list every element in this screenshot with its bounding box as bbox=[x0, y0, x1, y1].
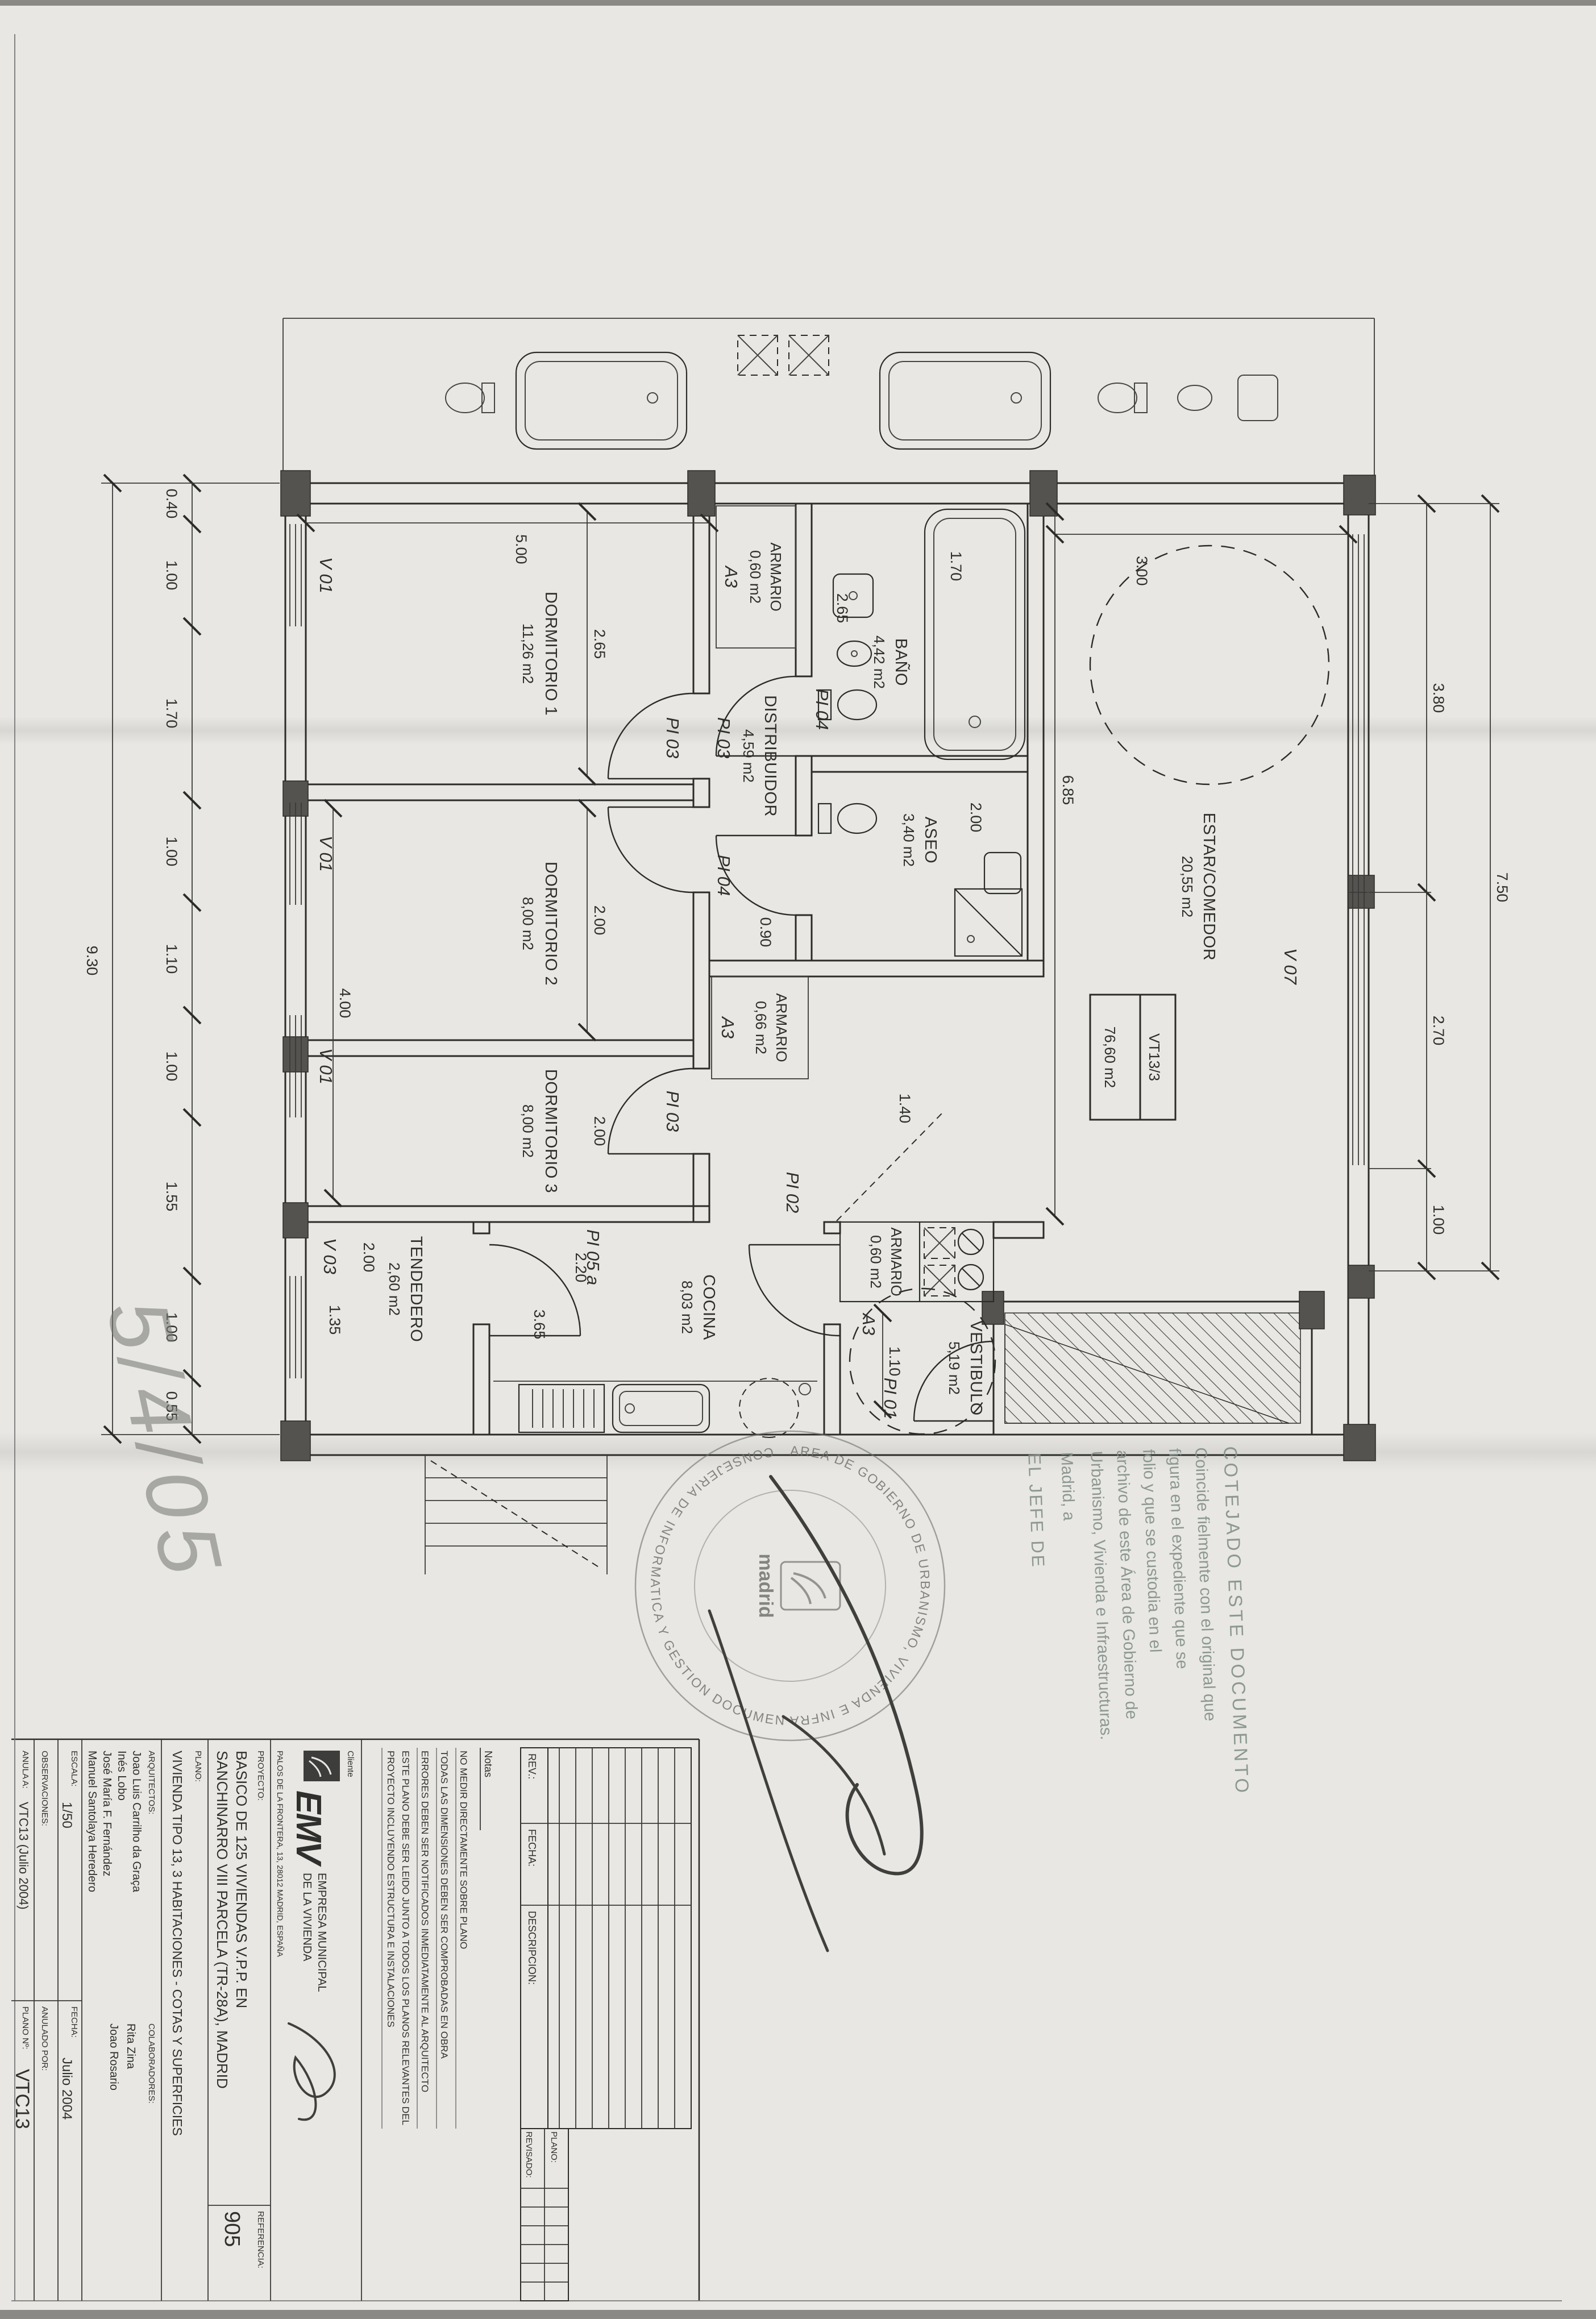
room-area-estar: 20,55 m2 bbox=[1179, 856, 1196, 917]
client-block: Cliente EMV EMPRESA MUNICIPAL DE LA VIVI… bbox=[276, 1739, 361, 2301]
window-label-v03: V 03 bbox=[320, 1238, 340, 1274]
room-area-tendedero: 2,60 m2 bbox=[386, 1262, 403, 1316]
client-address: PALOS DE LA FRONTERA, 13, 28012 MADRID, … bbox=[276, 1751, 285, 1957]
room-label-armario3: ARMARIO bbox=[888, 1227, 905, 1296]
adjacent-unit-fixtures bbox=[283, 318, 1374, 483]
escala-label: ESCALA: bbox=[69, 1751, 79, 1786]
dim-2-00-tend: 2.00 bbox=[360, 1242, 377, 1273]
architect-1: Inés Lobo bbox=[115, 1751, 128, 1801]
dim-bottom-1: 1.00 bbox=[163, 560, 180, 591]
dim-2-00-aseo: 2.00 bbox=[967, 803, 984, 833]
doors bbox=[489, 676, 994, 1421]
room-label-cocina: COCINA bbox=[700, 1274, 718, 1340]
washer-icon bbox=[739, 1378, 799, 1437]
door-label-pi02: PI 02 bbox=[783, 1172, 803, 1213]
note-1: TODAS LAS DIMENSIONES DEBEN SER COMPROBA… bbox=[439, 1751, 450, 2059]
dim-bottom-0: 0.40 bbox=[163, 489, 180, 519]
dim-6-85: 6.85 bbox=[1059, 775, 1077, 805]
bathtub-icon bbox=[880, 352, 1050, 449]
dim-2-65-d1: 2.65 bbox=[591, 629, 608, 659]
structural-columns bbox=[281, 471, 1375, 1461]
anula-a-label: ANULA A: bbox=[20, 1751, 30, 1789]
bidet-icon bbox=[837, 641, 871, 666]
dim-2-00-d3: 2.00 bbox=[591, 1116, 608, 1146]
cotejo-line-1: Coincide fielmente con el original que bbox=[1191, 1447, 1219, 1722]
toilet-icon bbox=[446, 383, 484, 413]
plano-num-value: VTC13 bbox=[11, 2069, 33, 2129]
dim-bottom-6: 1.55 bbox=[163, 1182, 180, 1212]
wardrobe-code-a3-2: A3 bbox=[718, 1016, 738, 1038]
rev-label: REV.: bbox=[526, 1753, 538, 1779]
room-area-bano: 4,42 m2 bbox=[871, 635, 888, 689]
dim-2-20: 2.20 bbox=[572, 1253, 589, 1283]
project-label: PROYECTO: bbox=[256, 1751, 265, 1801]
anula-a-value: VTC13 (Julio 2004) bbox=[16, 1802, 31, 1910]
observaciones-label: OBSERVACIONES: bbox=[40, 1751, 49, 1826]
door-arc-pi03-d2 bbox=[608, 807, 693, 892]
architect-2: José María F. Fernández bbox=[101, 1751, 113, 1876]
dim-top-1: 2.70 bbox=[1430, 1016, 1447, 1046]
mini-revisado-label: REVISADO: bbox=[524, 2131, 534, 2178]
room-area-armario2: 0,66 m2 bbox=[753, 1001, 770, 1054]
stair-core bbox=[994, 1302, 1312, 1435]
titleblock-bottom-rows: ESCALA: 1/50 FECHA: Julio 2004 OBSERVACI… bbox=[11, 1739, 82, 2301]
plano-block: PLANO: VIVIENDA TIPO 13, 3 HABITACIONES … bbox=[170, 1739, 208, 2301]
fecha-value: Julio 2004 bbox=[59, 2058, 74, 2119]
cotejo-line-2: figura en el expediente que se bbox=[1165, 1448, 1191, 1669]
architect-0: Joao Luis Carrilho da Graça bbox=[130, 1751, 143, 1893]
dim-2-65-bano: 2.65 bbox=[834, 593, 851, 624]
room-area-distribuidor: 4,59 m2 bbox=[740, 729, 757, 783]
room-area-aseo: 3,40 m2 bbox=[900, 813, 917, 867]
fecha-label: FECHA: bbox=[69, 2006, 79, 2038]
cotejo-stamp: COTEJADO ESTE DOCUMENTO Coincide fielmen… bbox=[1024, 1446, 1253, 1803]
dim-top-2: 1.00 bbox=[1430, 1205, 1447, 1235]
dim-bottom-total: 9.30 bbox=[84, 946, 101, 976]
room-label-armario2: ARMARIO bbox=[773, 993, 790, 1062]
bathtub-icon bbox=[516, 352, 687, 449]
referencia-value: 905 bbox=[220, 2211, 244, 2247]
room-label-bano: BAÑO bbox=[892, 638, 911, 686]
exterior-stair bbox=[425, 1455, 607, 1574]
dim-top-total: 7.50 bbox=[1494, 872, 1511, 903]
scanned-floorplan-sheet: VT13/3 76,60 m2 DORMITORIO 1 11,26 m2 DO… bbox=[0, 0, 1596, 2319]
door-label-pi04-a: PI 04 bbox=[812, 689, 832, 730]
rev-fecha-label: FECHA: bbox=[526, 1829, 538, 1867]
toilet-icon bbox=[838, 804, 876, 833]
stamps: AREA DE GOBIERNO DE URBANISMO, VIVIENDA … bbox=[89, 0, 1596, 1951]
room-label-dormitorio2: DORMITORIO 2 bbox=[542, 862, 560, 986]
collaborator-0: Rita Zina bbox=[124, 2023, 137, 2069]
collaborators-label: COLABORADORES: bbox=[147, 2023, 156, 2104]
cotejo-line-7: EL JEFE DE bbox=[1024, 1453, 1048, 1569]
dim-1-10: 1.10 bbox=[886, 1346, 903, 1377]
title-block: REV.: FECHA: DESCRIPCION: PLANO: REVISAD… bbox=[11, 34, 1562, 2301]
sink-icon bbox=[1238, 375, 1278, 421]
client-name-1: EMPRESA MUNICIPAL bbox=[315, 1873, 328, 1992]
room-labels: DORMITORIO 1 11,26 m2 DORMITORIO 2 8,00 … bbox=[386, 542, 1218, 1415]
dim-bottom-4: 1.10 bbox=[163, 944, 180, 974]
dim-bottom-3: 1.00 bbox=[163, 837, 180, 867]
plano-num-label: PLANO Nº: bbox=[20, 2006, 30, 2050]
toilet-icon bbox=[838, 690, 876, 720]
dim-3-65: 3.65 bbox=[531, 1310, 548, 1340]
project-line-2: SANCHINARRO VIII PARCELA (TR-28A), MADRI… bbox=[214, 1751, 231, 2089]
vestibule-closet bbox=[840, 1222, 994, 1302]
dim-bottom-5: 1.00 bbox=[163, 1052, 180, 1082]
window-label-v07: V 07 bbox=[1281, 948, 1300, 986]
sink-icon bbox=[984, 853, 1021, 893]
madrid-emblem-icon bbox=[304, 1751, 340, 1781]
dim-1-70: 1.70 bbox=[947, 551, 965, 581]
drawing-landscape-container: VT13/3 76,60 m2 DORMITORIO 1 11,26 m2 DO… bbox=[0, 0, 1596, 2319]
window-v01-d1 bbox=[290, 524, 301, 626]
dim-1-35: 1.35 bbox=[326, 1305, 343, 1335]
note-3: ESTE PLANO DEBE SER LEIDO JUNTO A TODOS … bbox=[400, 1751, 411, 2125]
fixtures bbox=[493, 509, 1329, 1437]
room-label-dormitorio1: DORMITORIO 1 bbox=[542, 592, 560, 716]
door-label-pi03-c: PI 03 bbox=[663, 1091, 683, 1132]
room-label-estar: ESTAR/COMEDOR bbox=[1200, 813, 1218, 961]
notes-label: Notas bbox=[483, 1751, 494, 1777]
unit-summary-box: VT13/3 76,60 m2 bbox=[1090, 995, 1175, 1120]
dim-top-0: 3.80 bbox=[1430, 683, 1447, 713]
window-v07 bbox=[1349, 534, 1368, 1165]
dim-0-90: 0.90 bbox=[757, 917, 774, 947]
note-0: NO MEDIR DIRECTAMENTE SOBRE PLANO bbox=[458, 1751, 469, 1949]
door-label-pi04-b: PI 04 bbox=[714, 855, 734, 896]
emv-logo: EMV bbox=[289, 1790, 328, 1867]
room-label-distribuidor: DISTRIBUIDOR bbox=[761, 695, 779, 817]
room-label-aseo: ASEO bbox=[921, 817, 940, 864]
door-arc-pi02 bbox=[749, 1245, 840, 1336]
wardrobe-code-a3-1: A3 bbox=[721, 565, 741, 588]
revision-table: REV.: FECHA: DESCRIPCION: bbox=[521, 1748, 691, 2129]
client-name-2: DE LA VIVIENDA bbox=[301, 1873, 313, 1961]
referencia-label: REFERENCIA: bbox=[256, 2211, 265, 2268]
escala-value: 1/50 bbox=[59, 1802, 74, 1828]
note-2: ERRORES DEBEN SER NOTIFICADOS INMEDIATAM… bbox=[419, 1751, 430, 2092]
room-area-dormitorio2: 8,00 m2 bbox=[519, 897, 537, 950]
architects-label: ARQUITECTOS: bbox=[147, 1751, 156, 1814]
room-area-armario3: 0,60 m2 bbox=[867, 1235, 884, 1289]
bidet-icon bbox=[1178, 385, 1212, 410]
dim-5-00: 5.00 bbox=[513, 534, 530, 564]
window-v01-d2 bbox=[290, 803, 301, 905]
room-area-vestibulo: 5,19 m2 bbox=[946, 1341, 963, 1395]
dim-2-00-d2: 2.00 bbox=[591, 905, 608, 936]
dim-1-40: 1.40 bbox=[896, 1094, 913, 1124]
door-label-pi03-b: PI 03 bbox=[663, 717, 683, 758]
room-area-dormitorio1: 11,26 m2 bbox=[519, 624, 537, 684]
plano-title: VIVIENDA TIPO 13, 3 HABITACIONES - COTAS… bbox=[170, 1751, 185, 2136]
toilet-icon bbox=[1098, 383, 1137, 413]
project-block: PROYECTO: BASICO DE 125 VIVIENDAS V.P.P.… bbox=[208, 1739, 271, 2301]
mini-plano-label: PLANO: bbox=[549, 2131, 559, 2163]
room-area-dormitorio3: 8,00 m2 bbox=[519, 1104, 537, 1158]
dim-4-00: 4.00 bbox=[336, 988, 354, 1019]
unit-total-area: 76,60 m2 bbox=[1102, 1026, 1119, 1088]
anulado-por-label: ANULADO POR: bbox=[40, 2006, 49, 2071]
architect-3: Manuel Santolaya Heredero bbox=[86, 1751, 98, 1892]
room-area-cocina: 8,03 m2 bbox=[679, 1281, 696, 1334]
client-label: Cliente bbox=[346, 1751, 355, 1777]
rev-descripcion-label: DESCRIPCION: bbox=[526, 1911, 538, 1985]
room-area-armario1: 0,60 m2 bbox=[747, 550, 764, 604]
dim-bottom-2: 1.70 bbox=[163, 699, 180, 729]
cotejo-line-3: folio y que se custodia en el bbox=[1139, 1449, 1164, 1653]
note-4: PROYECTO INCLUYENDO ESTRUCTURA E INSTALA… bbox=[385, 1751, 396, 2027]
plano-revisado-table: PLANO: REVISADO: bbox=[521, 2129, 568, 2301]
client-signature bbox=[289, 2023, 335, 2119]
stamp-center-text: madrid bbox=[755, 1553, 776, 1618]
wardrobe-code-a3-3: A3 bbox=[859, 1312, 879, 1335]
unit-code: VT13/3 bbox=[1146, 1033, 1163, 1081]
cotejo-line-0: COTEJADO ESTE DOCUMENTO bbox=[1220, 1446, 1253, 1796]
window-label-v01-1: V 01 bbox=[316, 557, 336, 593]
collaborator-1: Joao Rosario bbox=[107, 2023, 120, 2091]
cotejo-line-4: archivo de este Área de Gobierno de bbox=[1113, 1450, 1141, 1720]
cotejo-line-6: Madrid, a bbox=[1057, 1452, 1078, 1522]
door-label-pi01: PI 01 bbox=[880, 1378, 900, 1419]
floorplan-svg: VT13/3 76,60 m2 DORMITORIO 1 11,26 m2 DO… bbox=[0, 0, 1596, 2319]
furniture-circle bbox=[1090, 546, 1329, 784]
room-label-armario1: ARMARIO bbox=[767, 542, 784, 611]
window-v03 bbox=[290, 1276, 301, 1378]
plano-label: PLANO: bbox=[193, 1751, 203, 1782]
architects-block: ARQUITECTOS: Joao Luis Carrilho da Graça… bbox=[86, 1739, 161, 2301]
cotejo-line-5: Urbanismo, Vivienda e Infraestructuras. bbox=[1087, 1451, 1115, 1740]
dim-3-00: 3.00 bbox=[1133, 556, 1150, 586]
outer-walls bbox=[285, 483, 1369, 1455]
drainboard-icon bbox=[519, 1385, 604, 1432]
scanner-edge bbox=[0, 0, 1596, 6]
room-label-tendedero: TENDEDERO bbox=[407, 1236, 425, 1343]
project-line-1: BASICO DE 125 VIVIENDAS V.P.P. EN bbox=[233, 1751, 250, 2008]
notes-block: Notas NO MEDIR DIRECTAMENTE SOBRE PLANO … bbox=[382, 1748, 494, 2129]
room-label-dormitorio3: DORMITORIO 3 bbox=[542, 1069, 560, 1193]
room-label-vestibulo: VESTIBULO bbox=[967, 1320, 985, 1415]
door-label-pi03-a: PI 03 bbox=[714, 717, 734, 758]
